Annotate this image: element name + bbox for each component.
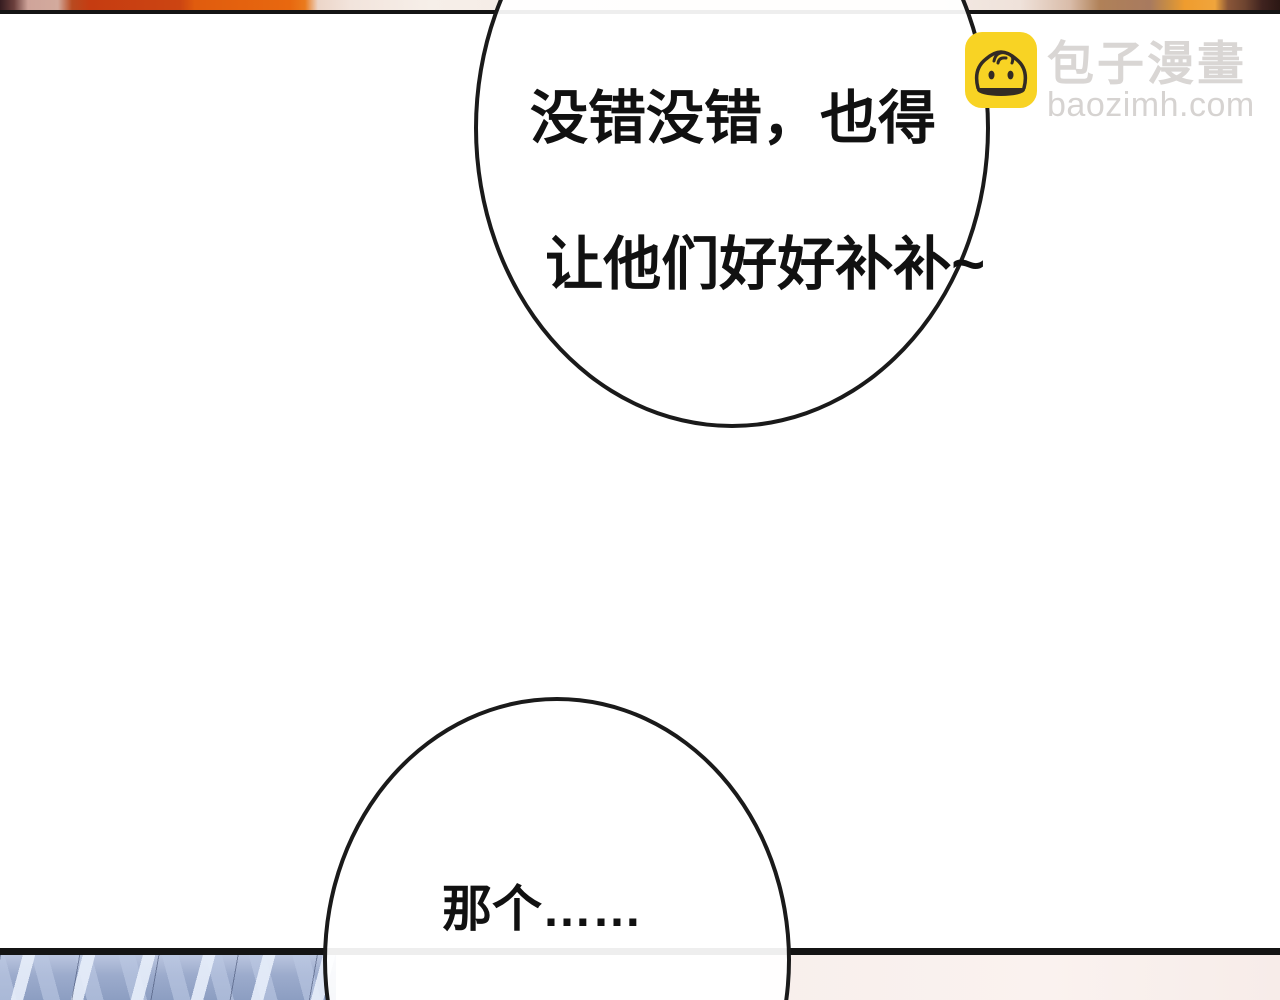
baozi-bun-icon [965,29,1037,109]
bun-left-eye [989,71,995,80]
watermark-site-text: baozimh.com [1047,88,1255,122]
comic-page: 没错没错，也得 让他们好好补补~ 那个…… 展放同学， 包子漫畫 baozimh… [0,0,1280,1000]
bottom-right-panel-background [760,955,1280,1000]
speech-line: 让他们好好补补~ [545,232,985,297]
speech-line: 那个…… [442,881,642,937]
speech-bubble-bottom-text: 那个…… 展放同学， [442,874,748,1000]
speech-bubble-top-text: 没错没错，也得 让他们好好补补~ [478,82,988,374]
speech-line: 没错没错，也得 [530,86,936,151]
bun-right-eye [1008,71,1014,80]
bottom-left-fabric-artwork [0,955,336,1000]
watermark-brand-text: 包子漫畫 [1047,40,1247,87]
